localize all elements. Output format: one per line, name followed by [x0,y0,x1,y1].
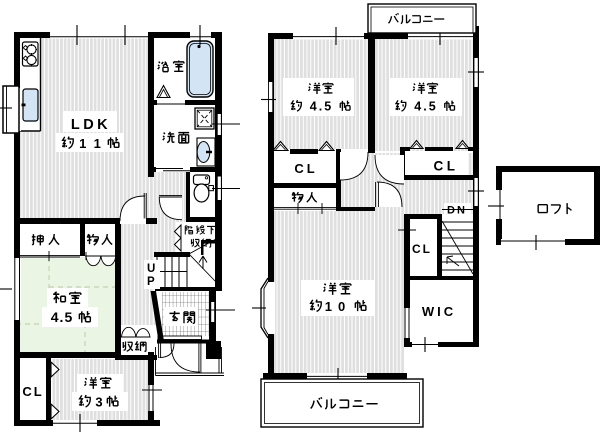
svg-text:CL: CL [22,384,43,399]
svg-text:CL: CL [294,161,317,176]
svg-text:4.5: 4.5 [51,309,73,325]
svg-text:LDK: LDK [71,117,111,133]
svg-text:CL: CL [434,159,459,174]
svg-text:DN: DN [447,205,467,217]
svg-text:4.5: 4.5 [414,100,437,114]
svg-text:4.5: 4.5 [310,100,333,114]
svg-text:U: U [147,263,155,275]
svg-text:CL: CL [412,242,432,256]
svg-text:WIC: WIC [422,304,456,319]
svg-text:11: 11 [79,136,109,151]
svg-text:P: P [147,276,155,288]
svg-text:3: 3 [95,395,102,410]
svg-text:10: 10 [325,299,351,314]
